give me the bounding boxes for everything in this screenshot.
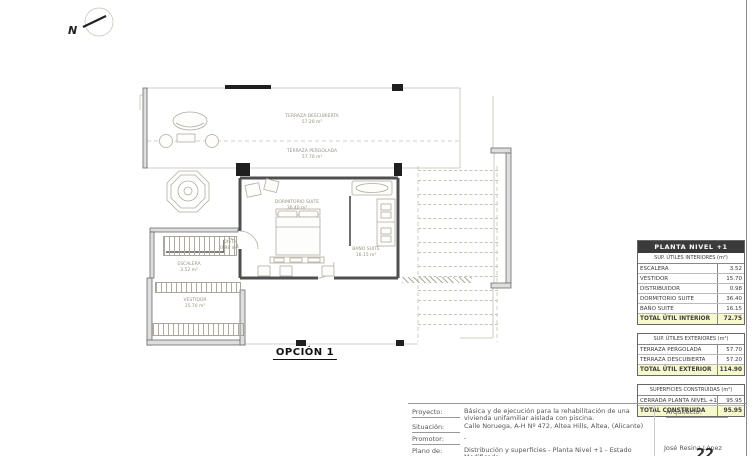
floor-hatch [402,277,472,283]
plan-sheet: N [0,0,756,456]
north-letter: N [68,24,77,37]
pergola-beam [418,242,498,253]
interior-areas-table: PLANTA NIVEL +1 SUP. ÚTILES INTERIORES (… [637,240,745,325]
pergola-beam [418,314,498,325]
title-block-divider [654,406,655,456]
pergola-beam [418,266,498,277]
table-row: DORMITORIO SUITE 36.40 [638,294,744,304]
field-label: Proyecto: [412,408,460,418]
room-label-terraza-descubierta: TERRAZA DESCUBIERTA 57.20 m² [285,114,338,125]
field-value: - [464,435,656,442]
pergola-beam [418,170,498,181]
room-label-vestidor: VESTIDOR 15.70 m² [184,298,207,309]
field-label: Plano de: [412,447,460,456]
wardrobe [377,199,395,246]
table-row: ESCALERA 3.52 [638,264,744,274]
sheet-border [746,0,747,456]
room-label-distribuidor: DIST. 0.98 m² [220,240,238,251]
sheet-number: 22 [696,447,714,456]
field-label: Promotor: [412,435,460,445]
area-summary-tables: PLANTA NIVEL +1 SUP. ÚTILES INTERIORES (… [637,240,745,425]
exterior-areas-table: SUP. ÚTILES EXTERIORES (m²) TERRAZA PERG… [637,333,745,376]
table-total-row: TOTAL ÚTIL EXTERIOR 114.90 [638,365,744,375]
table-total-row: TOTAL ÚTIL INTERIOR 72.75 [638,314,744,324]
field-value: Distribución y superficies - Planta Nive… [464,447,656,456]
pergola-beam [418,218,498,229]
jacuzzi [167,171,209,212]
north-arrow-icon: N [68,8,113,37]
bed [270,209,324,263]
bathtub [352,181,392,195]
plan-caption: OPCIÓN 1 [273,347,337,360]
room-label-escalera: ESCALERA 3.52 m² [177,262,200,273]
table-subheader: SUPERFICIES CONSTRUIDAS (m²) [638,385,744,396]
table-row: VESTIDOR 15.70 [638,274,744,284]
table-row: TERRAZA DESCUBIERTA 57.20 [638,355,744,365]
architect-label: Arquitecto: [666,408,728,418]
table-row: DISTRIBUIDOR 0.98 [638,284,744,294]
table-row: BAÑO SUITE 16.15 [638,304,744,314]
room-label-terraza-pergolada: TERRAZA PERGOLADA 57.70 m² [287,149,337,160]
terrace-sofa-set [160,112,219,148]
field-label: Situación: [412,423,460,433]
table-subheader: SUP. ÚTILES INTERIORES (m²) [638,253,744,264]
closet-hatch [155,282,241,293]
pergola-beam [418,194,498,205]
field-value: Básica y de ejecución para la rehabilita… [464,408,656,422]
field-value: Calle Noruega, A-H Nº 472, Altea Hills, … [464,423,656,430]
table-row: TERRAZA PERGOLADA 57.70 [638,345,744,355]
room-label-dormitorio-suite: DORMITORIO SUITE 36.40 m² [275,200,319,211]
room-label-bano-suite: BAÑO SUITE 16.15 m² [352,247,380,258]
table-title: PLANTA NIVEL +1 [638,241,744,253]
table-subheader: SUP. ÚTILES EXTERIORES (m²) [638,334,744,345]
closet-hatch [152,323,244,336]
pergola-beam [418,290,498,301]
